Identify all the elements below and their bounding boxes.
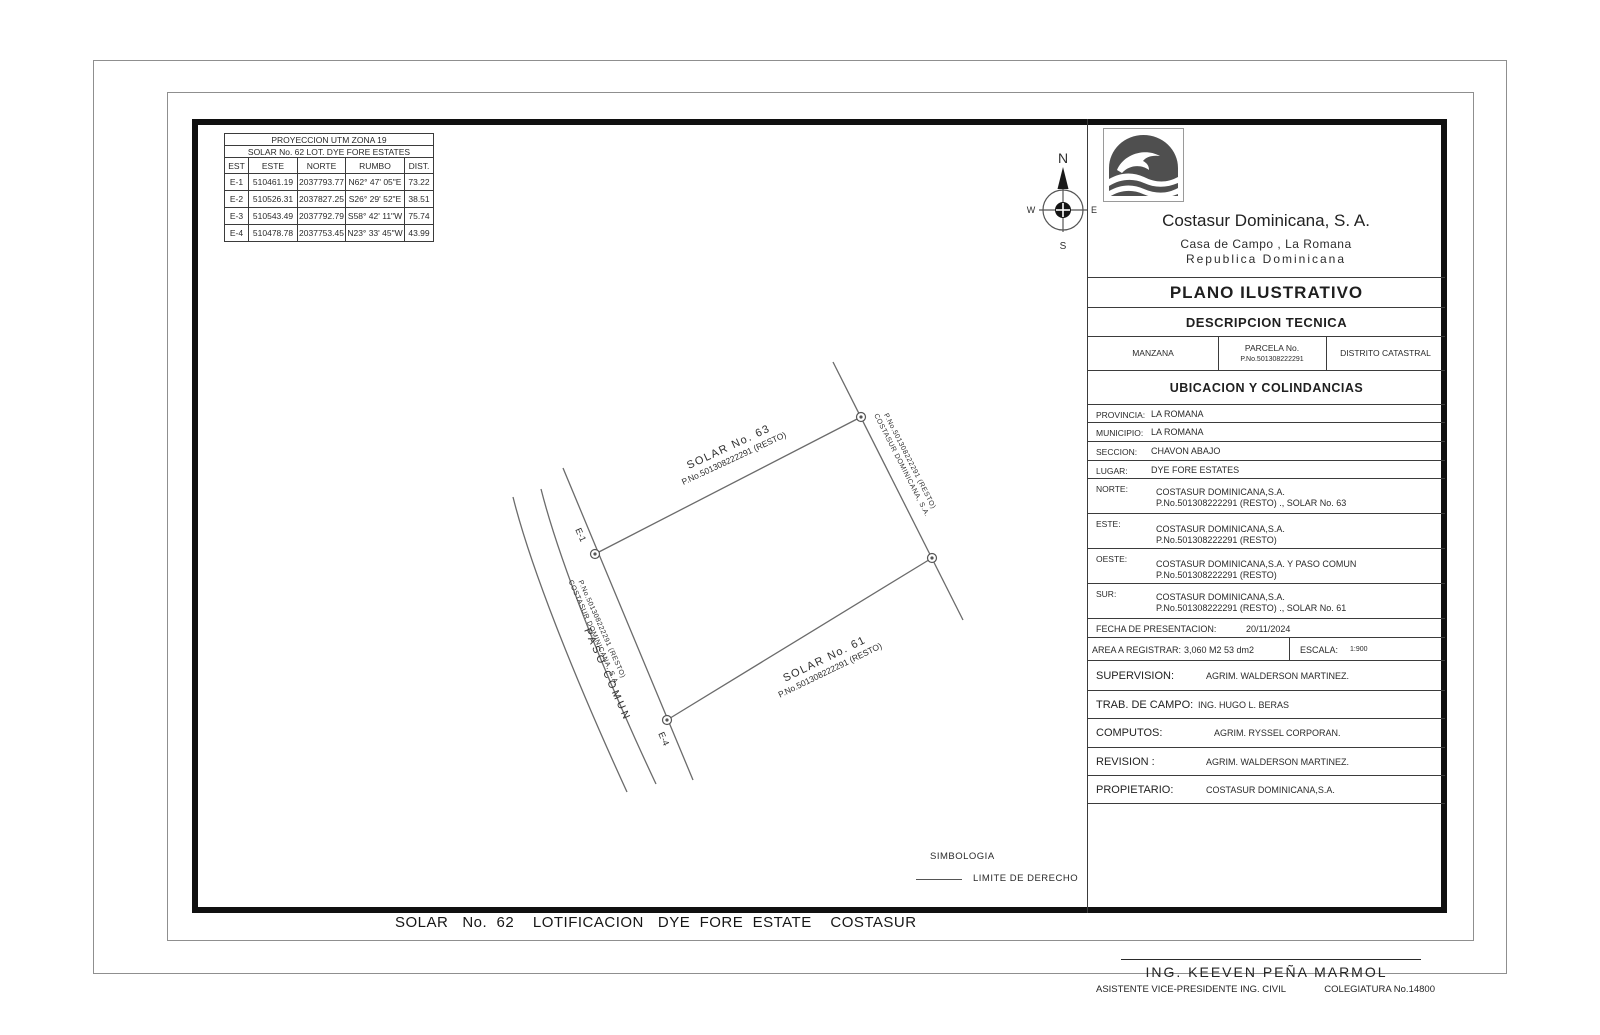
- staff-value: AGRIM. RYSSEL CORPORAN.: [1214, 728, 1341, 738]
- revision-row: REVISION : AGRIM. WALDERSON MARTINEZ.: [1088, 747, 1445, 775]
- compass-north-label: N: [1058, 150, 1068, 166]
- provincia-row: PROVINCIA: LA ROMANA: [1088, 404, 1445, 422]
- row-value-line1: COSTASUR DOMINICANA,S.A. Y PASO COMUN: [1156, 559, 1356, 569]
- row-value-line1: COSTASUR DOMINICANA,S.A.: [1156, 592, 1285, 602]
- company-address-line2: Republica Dominicana: [1088, 252, 1444, 266]
- area-value: 3,060 M2 53 dm2: [1184, 645, 1254, 655]
- row-value: CHAVON ABAJO: [1151, 446, 1220, 456]
- station-dot: [931, 557, 933, 559]
- boundary-west-line: [563, 468, 693, 780]
- row-label: ESTE:: [1096, 519, 1121, 529]
- fecha-row: FECHA DE PRESENTACION: 20/11/2024: [1088, 618, 1445, 637]
- plano-ilustrativo-row: PLANO ILUSTRATIVO: [1088, 277, 1445, 307]
- station-markers: [591, 413, 937, 725]
- parcela-value: P.No.501308222291: [1218, 356, 1326, 363]
- manzana-label: MANZANA: [1088, 348, 1218, 358]
- plano-title: PLANO ILUSTRATIVO: [1088, 278, 1445, 308]
- sur-row: SUR: COSTASUR DOMINICANA,S.A. P.No.50130…: [1088, 583, 1445, 618]
- row-label: OESTE:: [1096, 554, 1127, 564]
- company-name: Costasur Dominicana, S. A.: [1088, 211, 1444, 231]
- staff-value: ING. HUGO L. BERAS: [1198, 700, 1289, 710]
- row-value: LA ROMANA: [1151, 409, 1204, 419]
- row-label: MUNICIPIO:: [1096, 428, 1143, 438]
- engineer-colegiatura: COLEGIATURA No.14800: [1324, 984, 1435, 995]
- staff-label: REVISION :: [1096, 756, 1155, 768]
- este-row: ESTE: COSTASUR DOMINICANA,S.A. P.No.5013…: [1088, 513, 1445, 548]
- row-value: DYE FORE ESTATES: [1151, 465, 1239, 475]
- station-label-e1: E-1: [573, 526, 588, 543]
- cell-divider: [1218, 337, 1219, 370]
- survey-plan-sheet: PROYECCION UTM ZONA 19 SOLAR No. 62 LOT.…: [0, 0, 1600, 1035]
- east-parcel-label-line1: P.No.501308222291 (RESTO): [882, 412, 937, 510]
- descripcion-title: DESCRIPCION TECNICA: [1088, 308, 1445, 337]
- escala-value: 1:900: [1350, 646, 1368, 653]
- compass-north-arrow: [1058, 167, 1069, 189]
- row-label: NORTE:: [1096, 484, 1128, 494]
- limite-de-derecho-label: LIMITE DE DERECHO: [973, 873, 1078, 884]
- parcela-label: PARCELA No.: [1218, 343, 1326, 353]
- manzana-parcela-row: MANZANA PARCELA No. P.No.501308222291 DI…: [1088, 336, 1445, 370]
- escala-label: ESCALA:: [1300, 645, 1338, 655]
- computos-row: COMPUTOS: AGRIM. RYSSEL CORPORAN.: [1088, 718, 1445, 747]
- station-dot: [666, 719, 668, 721]
- row-label: SECCION:: [1096, 447, 1137, 457]
- row-value-line2: P.No.501308222291 (RESTO): [1156, 570, 1277, 580]
- seccion-row: SECCION: CHAVON ABAJO: [1088, 441, 1445, 460]
- engineer-name: ING. KEEVEN PEÑA MARMOL: [1088, 964, 1445, 980]
- municipio-row: MUNICIPIO: LA ROMANA: [1088, 422, 1445, 441]
- station-label-e4: E-4: [656, 730, 671, 747]
- fecha-value: 20/11/2024: [1246, 624, 1290, 634]
- propietario-row: PROPIETARIO: COSTASUR DOMINICANA,S.A.: [1088, 775, 1445, 803]
- area-escala-row: AREA A REGISTRAR: 3,060 M2 53 dm2 ESCALA…: [1088, 637, 1445, 660]
- row-value-line1: COSTASUR DOMINICANA,S.A.: [1156, 487, 1285, 497]
- row-value: LA ROMANA: [1151, 427, 1204, 437]
- row-label: LUGAR:: [1096, 466, 1128, 476]
- oeste-row: OESTE: COSTASUR DOMINICANA,S.A. Y PASO C…: [1088, 548, 1445, 583]
- sheet-title: SOLAR No. 62 LOTIFICACION DYE FORE ESTAT…: [395, 914, 917, 931]
- distrito-label: DISTRITO CATASTRAL: [1326, 348, 1445, 358]
- descripcion-tecnica-row: DESCRIPCION TECNICA: [1088, 307, 1445, 336]
- staff-label: PROPIETARIO:: [1096, 784, 1173, 796]
- staff-label: TRAB. DE CAMPO:: [1096, 699, 1193, 711]
- engineer-title: ASISTENTE VICE-PRESIDENTE ING. CIVIL: [1096, 984, 1286, 995]
- boundary-north: [595, 417, 861, 554]
- staff-label: SUPERVISION:: [1096, 670, 1174, 682]
- title-block: Costasur Dominicana, S. A. Casa de Campo…: [1087, 119, 1444, 913]
- east-parcel-label-line2: COSTASUR DOMINICANA, S.A.: [872, 413, 930, 518]
- area-label: AREA A REGISTRAR:: [1092, 645, 1181, 655]
- compass-south-label: S: [1060, 241, 1067, 252]
- row-label: PROVINCIA:: [1096, 410, 1145, 420]
- supervision-row: SUPERVISION: AGRIM. WALDERSON MARTINEZ.: [1088, 660, 1445, 690]
- staff-label: COMPUTOS:: [1096, 727, 1162, 739]
- cell-divider: [1289, 638, 1290, 660]
- simbologia-title: SIMBOLOGIA: [930, 851, 995, 862]
- limite-de-derecho-line-symbol: [916, 879, 962, 880]
- compass-west-label: W: [1027, 205, 1036, 215]
- row-value-line2: P.No.501308222291 (RESTO) ., SOLAR No. 6…: [1156, 603, 1346, 613]
- ubicacion-header-row: UBICACION Y COLINDANCIAS: [1088, 370, 1445, 404]
- station-dot: [860, 416, 862, 418]
- boundary-east-line: [833, 362, 963, 620]
- row-value-line2: P.No.501308222291 (RESTO) ., SOLAR No. 6…: [1156, 498, 1346, 508]
- staff-value: AGRIM. WALDERSON MARTINEZ.: [1206, 757, 1349, 767]
- ubicacion-title: UBICACION Y COLINDANCIAS: [1088, 371, 1445, 405]
- norte-row: NORTE: COSTASUR DOMINICANA,S.A. P.No.501…: [1088, 478, 1445, 513]
- row-value-line2: P.No.501308222291 (RESTO): [1156, 535, 1277, 545]
- fecha-label: FECHA DE PRESENTACION:: [1096, 624, 1216, 634]
- signature-block: ING. KEEVEN PEÑA MARMOL ASISTENTE VICE-P…: [1088, 803, 1445, 913]
- row-label: SUR:: [1096, 589, 1116, 599]
- staff-value: AGRIM. WALDERSON MARTINEZ.: [1206, 671, 1349, 681]
- company-address-line1: Casa de Campo , La Romana: [1088, 237, 1444, 251]
- station-dot: [594, 553, 596, 555]
- boundary-south: [667, 558, 932, 720]
- trab-de-campo-row: TRAB. DE CAMPO: ING. HUGO L. BERAS: [1088, 690, 1445, 718]
- signature-line: [1121, 959, 1421, 960]
- staff-value: COSTASUR DOMINICANA,S.A.: [1206, 785, 1335, 795]
- row-value-line1: COSTASUR DOMINICANA,S.A.: [1156, 524, 1285, 534]
- lugar-row: LUGAR: DYE FORE ESTATES: [1088, 460, 1445, 478]
